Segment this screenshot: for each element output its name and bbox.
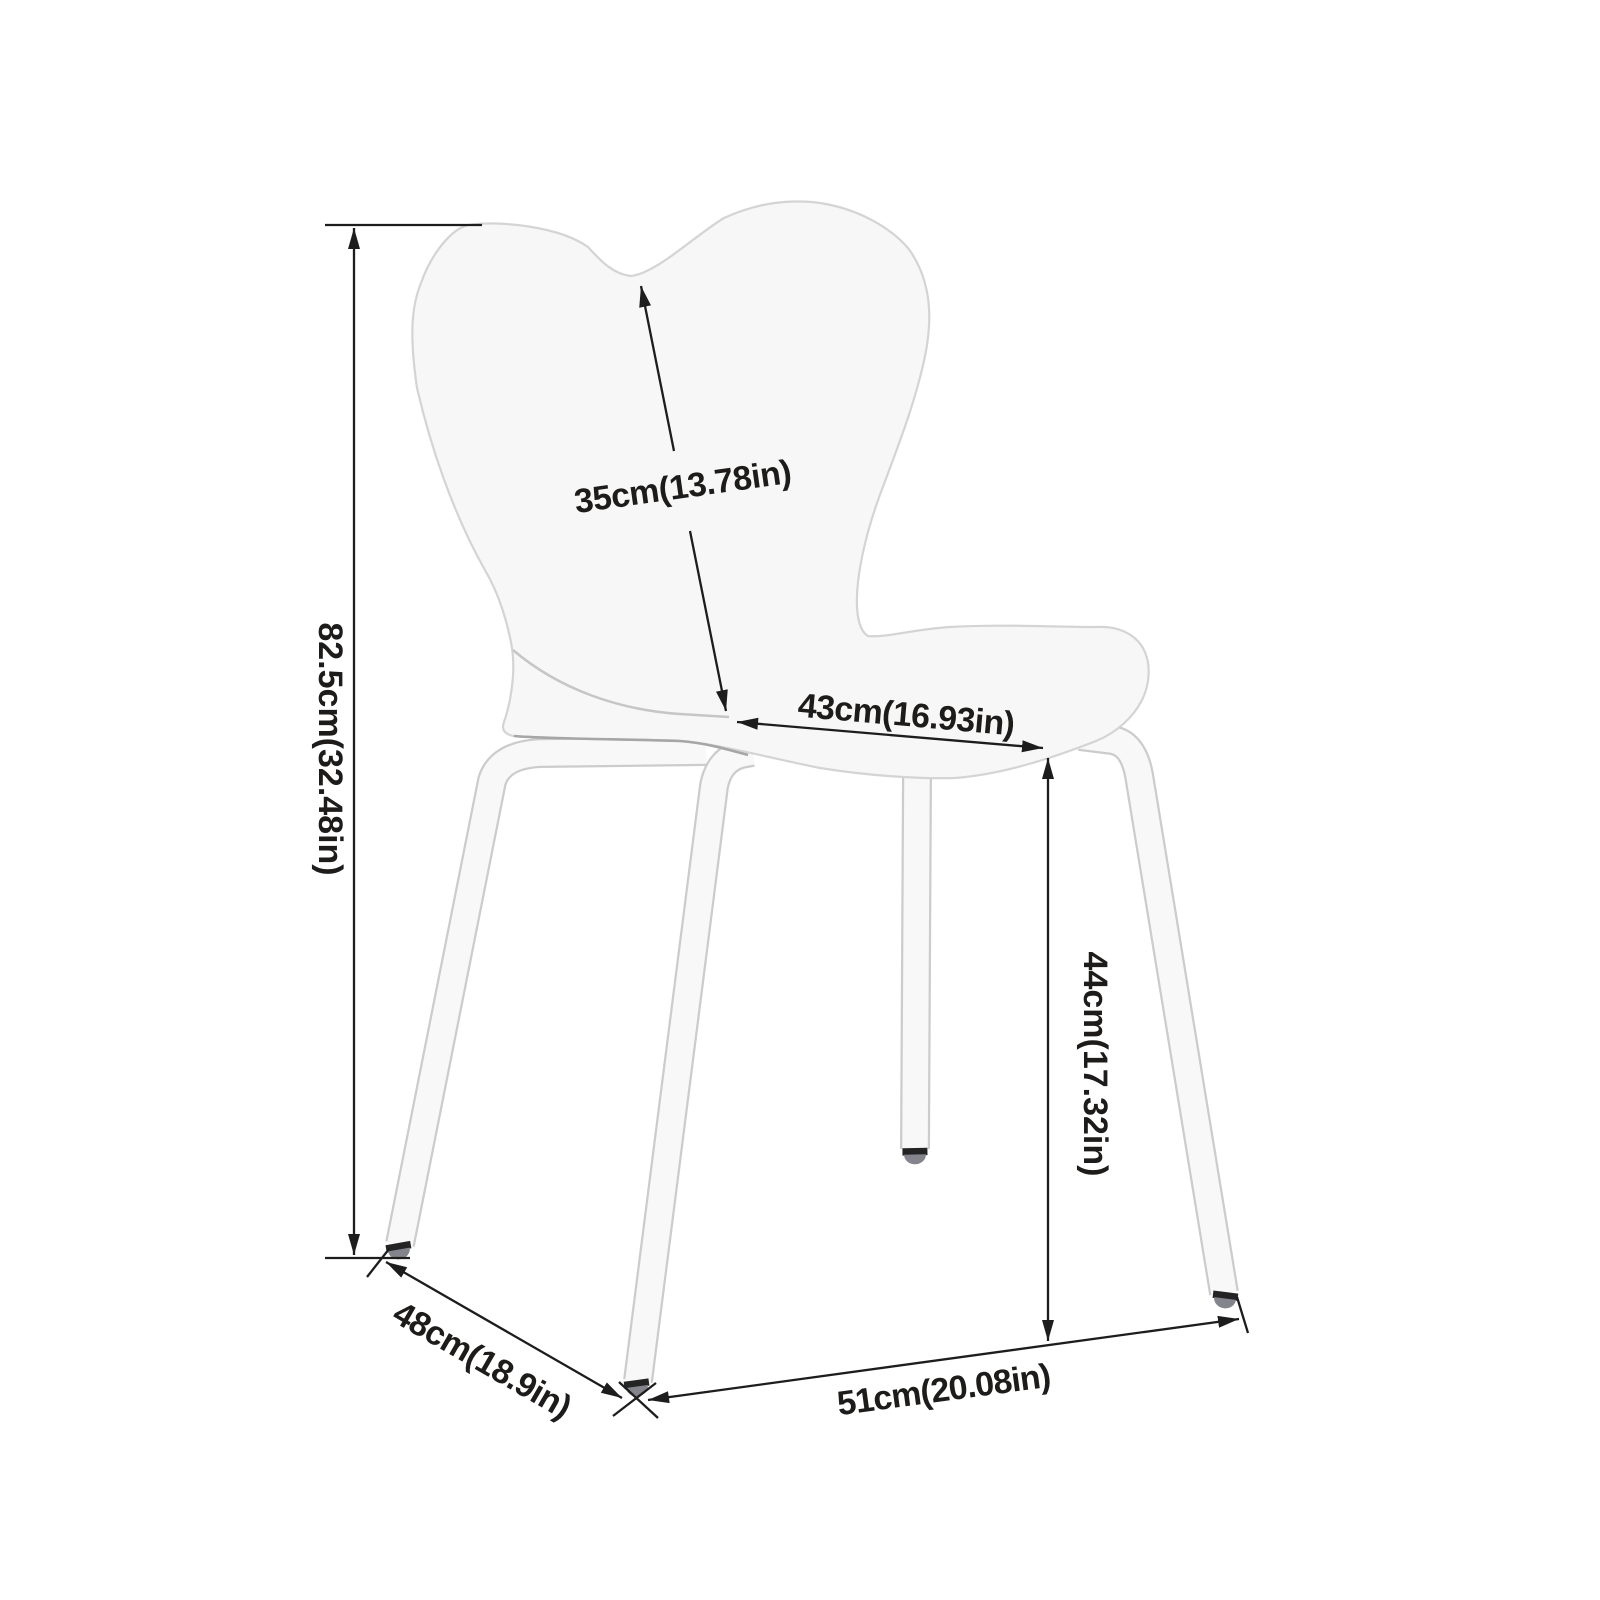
- svg-text:82.5cm(32.48in): 82.5cm(32.48in): [311, 622, 349, 875]
- svg-text:44cm(17.32in): 44cm(17.32in): [1076, 952, 1114, 1177]
